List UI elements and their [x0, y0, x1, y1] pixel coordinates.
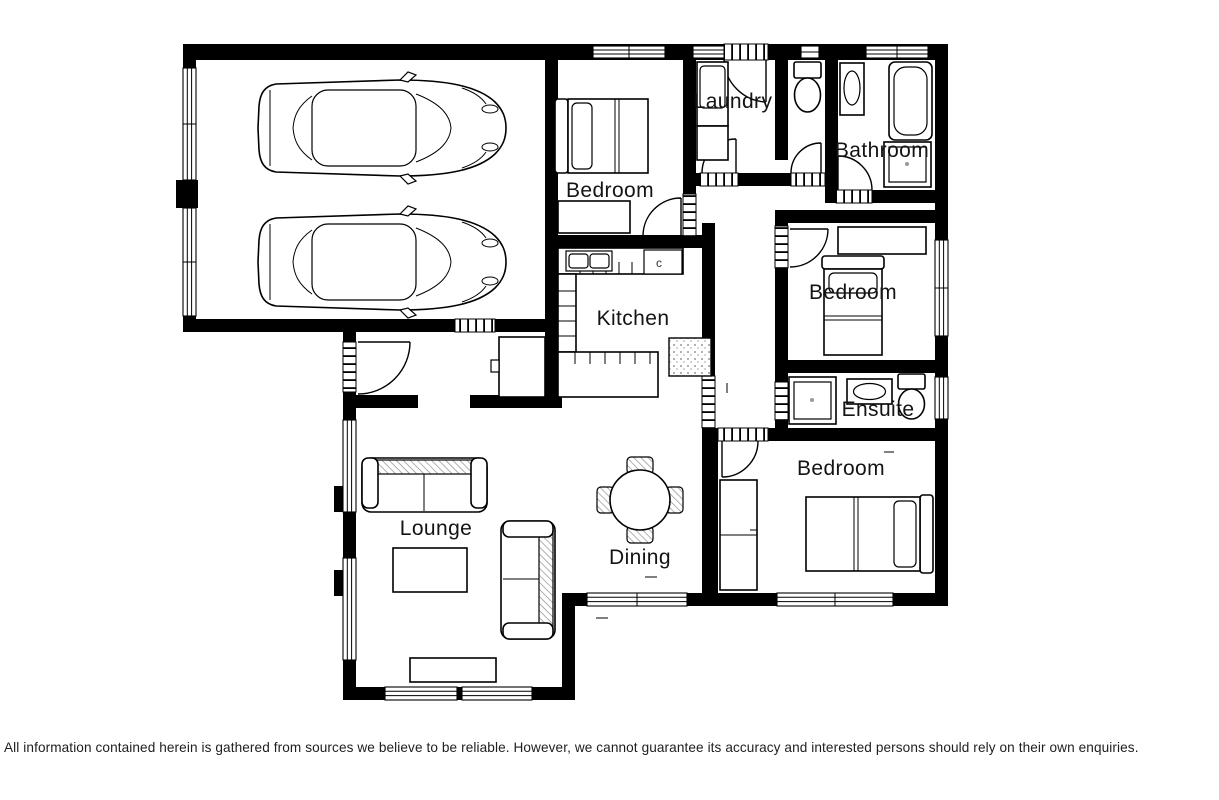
vanity-sink-icon: [840, 63, 864, 115]
window-icon: [462, 687, 532, 700]
room-label-ensuite: Ensuite: [842, 398, 915, 422]
lounge-furniture: [362, 458, 555, 682]
dresser-icon: [838, 227, 926, 254]
entry-closet-icon: [491, 337, 545, 397]
wall-segment: [183, 44, 948, 60]
wall-segment: [825, 190, 836, 203]
window-icon: [183, 208, 196, 316]
garage-cars: [258, 72, 506, 318]
bathtub-icon: [889, 62, 932, 140]
wall-segment: [738, 173, 791, 186]
window-icon: [935, 377, 948, 419]
wall-segment: [768, 428, 948, 441]
wall-segment: [775, 58, 788, 160]
floor-plan-page: c: [0, 0, 1219, 800]
wall-segment: [775, 373, 788, 382]
window-icon: [343, 420, 356, 512]
window-icon: [693, 46, 727, 58]
wall-segment: [775, 210, 935, 223]
window-icon: [935, 240, 948, 336]
wall-segment: [183, 319, 358, 332]
wall-segment: [683, 44, 696, 194]
hot-water-unit-icon: [669, 338, 711, 376]
kitchen-counter-icon: [558, 352, 658, 397]
floor-plan-drawing: c: [0, 0, 1219, 800]
wall-segment: [825, 58, 838, 203]
wall-segment: [702, 428, 718, 593]
bed-icon: [555, 99, 648, 173]
wall-segment: [343, 687, 575, 700]
wall-segment: [562, 593, 575, 700]
room-label-bedroom-bottom: Bedroom: [797, 457, 885, 481]
sofa-icon: [362, 458, 487, 512]
wall-pier: [176, 180, 198, 208]
room-label-dining: Dining: [609, 546, 671, 570]
bedroom-bottom-furniture: [720, 480, 933, 590]
wall-segment: [558, 235, 715, 248]
toilet-icon: [794, 62, 821, 112]
wall-segment: [358, 319, 455, 332]
wardrobe-icon: [720, 480, 757, 590]
room-label-lounge: Lounge: [400, 517, 472, 541]
wall-segment: [775, 360, 948, 373]
wall-segment: [683, 173, 700, 186]
kitchen-sink-icon: [566, 251, 612, 271]
wall-segment: [775, 268, 788, 373]
dining-table-icon: [610, 470, 670, 530]
kitchen-counter-icon: [558, 274, 576, 352]
bed-icon: [806, 495, 933, 573]
window-icon: [343, 558, 356, 660]
room-label-bathroom: Bathroom: [835, 139, 929, 163]
stove-mark: c: [656, 256, 662, 270]
disclaimer-text: All information contained herein is gath…: [4, 740, 1216, 755]
window-icon: [385, 687, 457, 700]
front-door-swing-icon: [343, 342, 410, 394]
stove-icon: c: [644, 250, 682, 274]
bed-icon: [822, 256, 884, 355]
bathroom-door-swing-icon: [836, 156, 872, 203]
dresser-icon: [558, 201, 630, 233]
wall-segment: [356, 395, 418, 408]
hall-dining-opening-icon: [702, 376, 715, 428]
coffee-table-icon: [393, 548, 467, 592]
tv-unit-icon: [410, 658, 496, 682]
room-label-kitchen: Kitchen: [597, 307, 670, 331]
bedroom-middle-door-swing-icon: [775, 226, 828, 268]
wall-segment: [775, 210, 788, 226]
washing-machine-icon: [697, 126, 728, 160]
wall-segment: [343, 332, 356, 342]
window-icon: [183, 68, 196, 180]
sofa-icon: [501, 521, 555, 639]
room-label-bedroom-middle: Bedroom: [809, 281, 897, 305]
car-icon: [258, 206, 506, 318]
bedroom-top-furniture: [555, 99, 648, 233]
window-icon: [587, 593, 687, 606]
window-icon: [866, 46, 928, 58]
wall-segment: [872, 190, 948, 203]
window-icon: [777, 593, 893, 606]
wc-door-swing-icon: [791, 143, 825, 186]
garage-entry-door-icon: [455, 319, 495, 332]
dining-furniture: [597, 457, 683, 543]
shower-icon: [789, 377, 836, 424]
car-icon: [258, 72, 506, 184]
bathroom-fixtures: [840, 62, 932, 187]
room-label-laundry: Laundry: [694, 90, 773, 114]
bedroom-bottom-door-swing-icon: [718, 428, 768, 477]
window-icon: [593, 46, 665, 58]
window-icon: [801, 46, 819, 58]
room-label-bedroom-top: Bedroom: [566, 179, 654, 203]
